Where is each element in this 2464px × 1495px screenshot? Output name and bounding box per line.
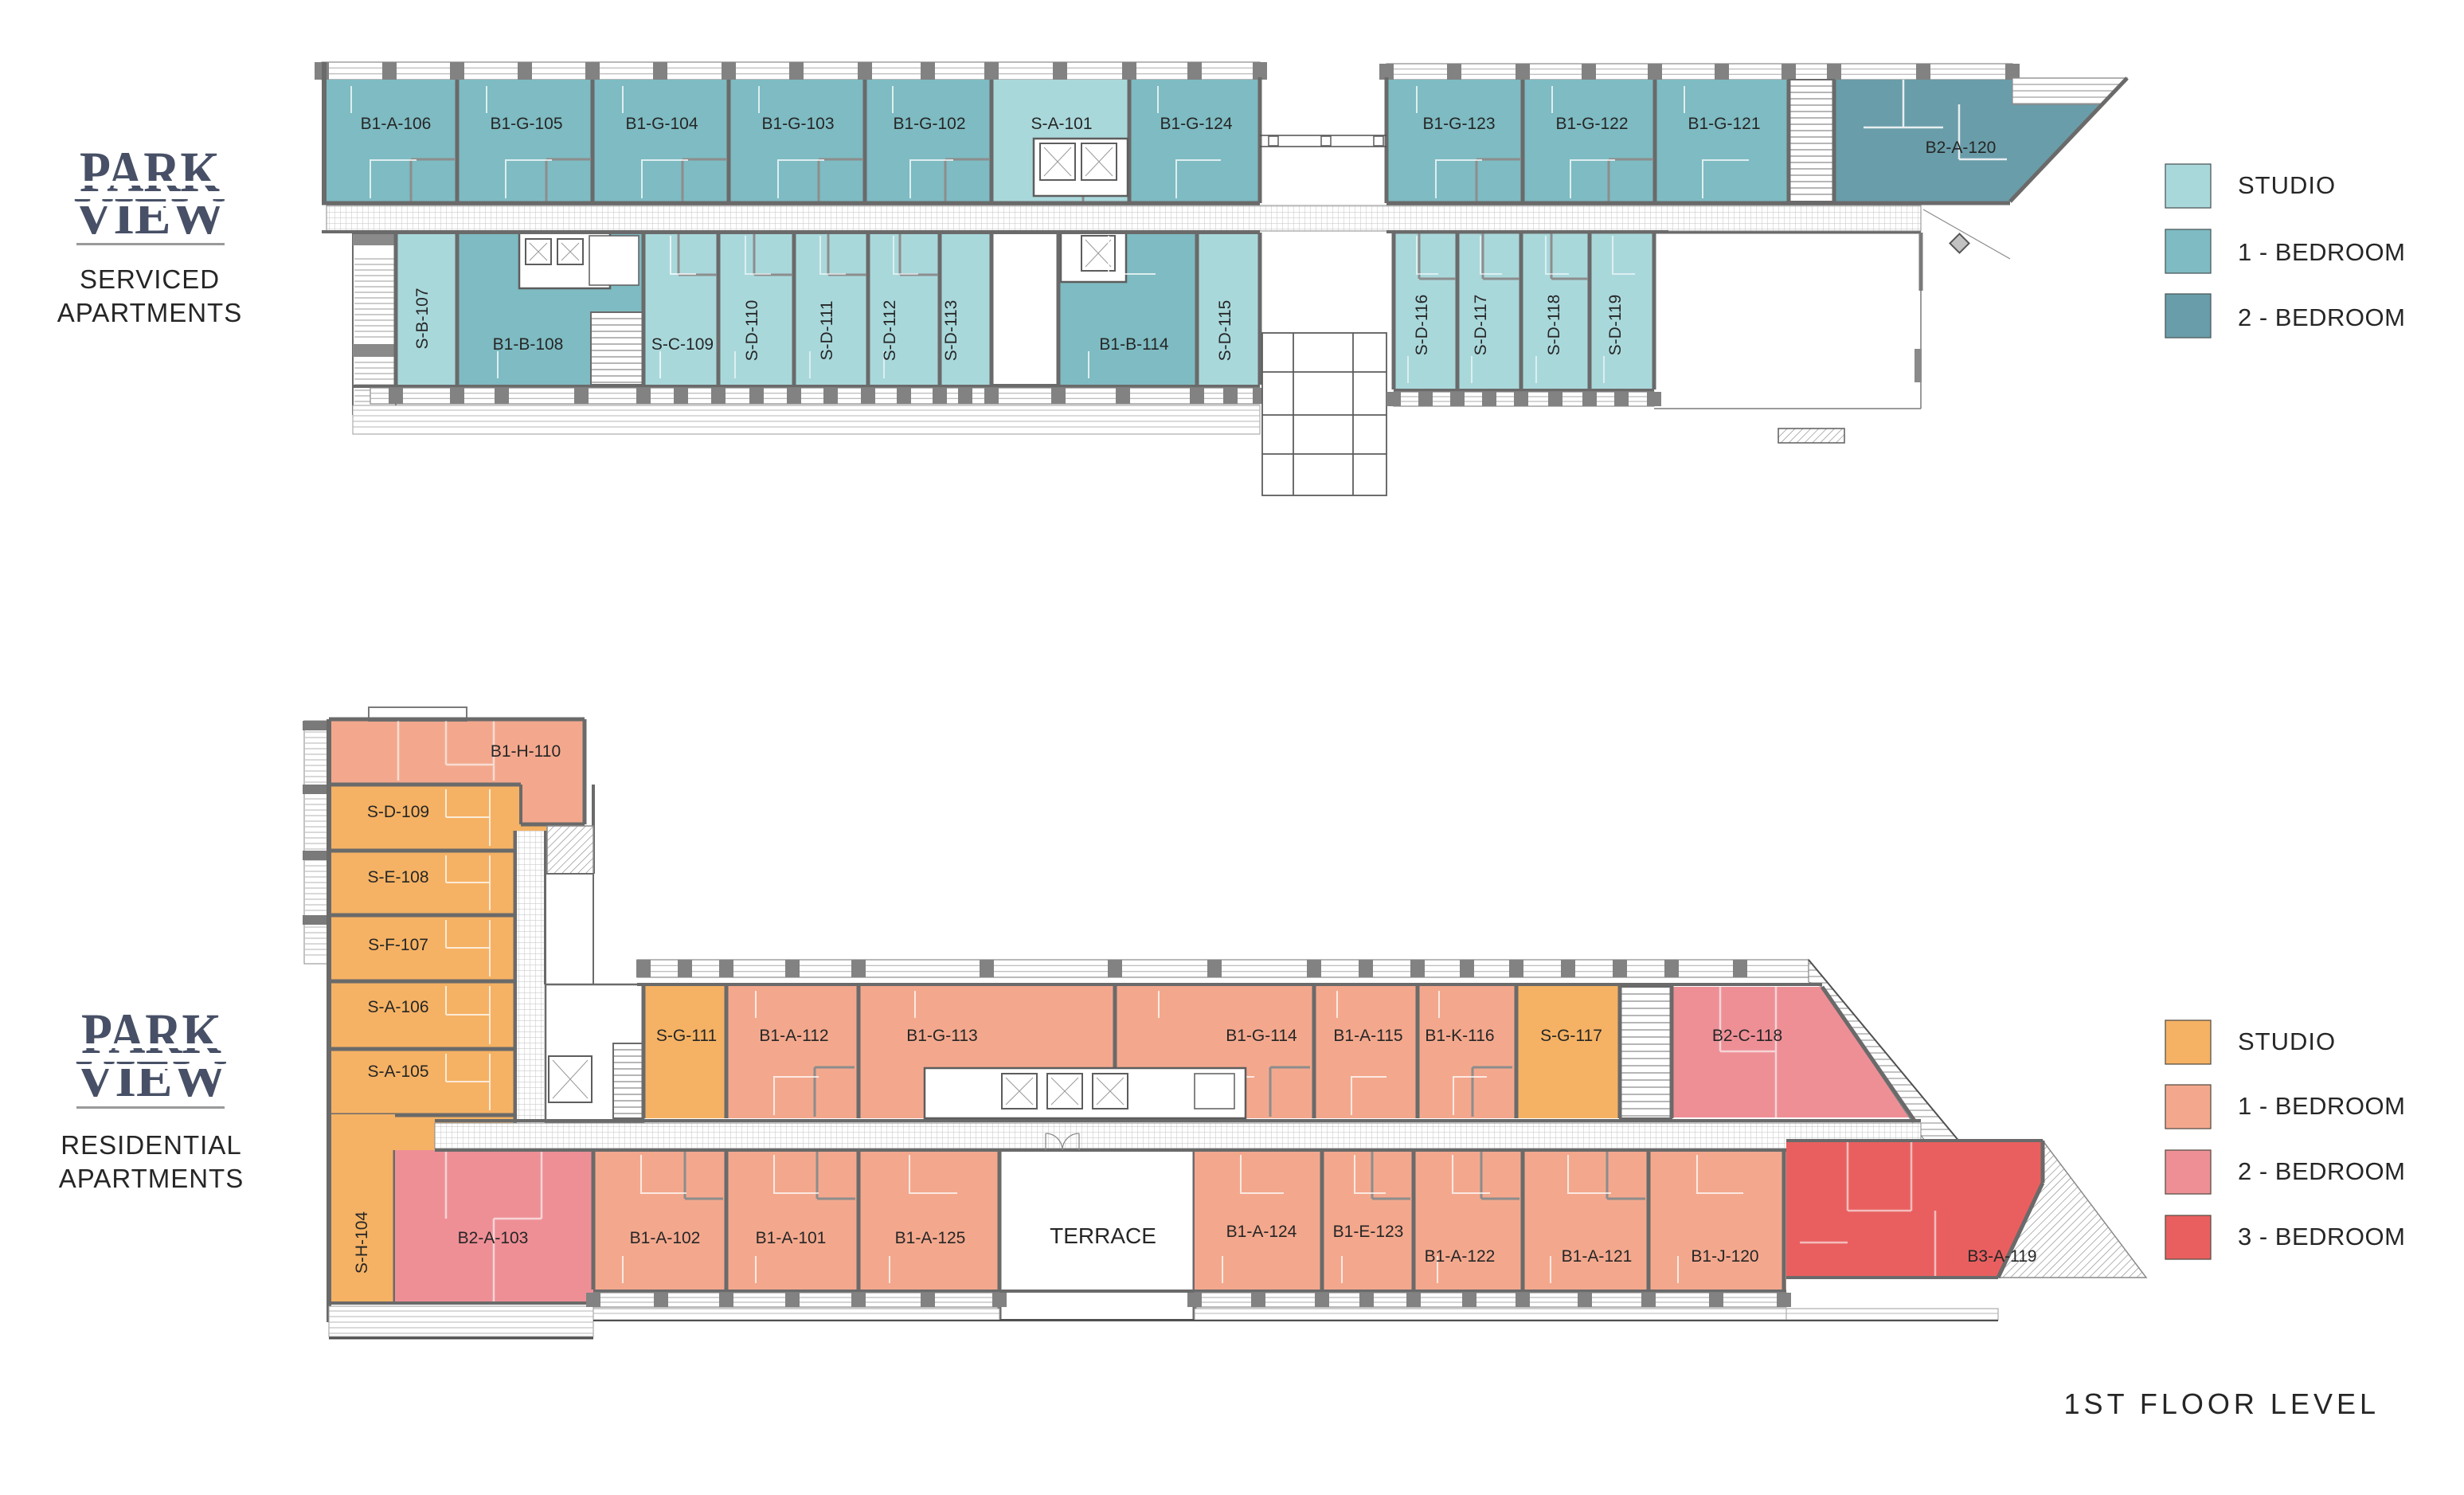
svg-text:S-D-109: S-D-109 [367,803,429,821]
svg-text:STUDIO: STUDIO [2238,1027,2336,1055]
svg-text:S-D-117: S-D-117 [1472,295,1490,356]
svg-text:B1-G-122: B1-G-122 [1555,115,1628,133]
svg-text:B1-G-113: B1-G-113 [906,1027,978,1045]
svg-text:S-D-119: S-D-119 [1606,295,1625,356]
svg-text:S-A-105: S-A-105 [367,1063,428,1081]
svg-text:1 - BEDROOM: 1 - BEDROOM [2238,238,2405,266]
svg-text:S-D-116: S-D-116 [1413,295,1431,356]
svg-text:APARTMENTS: APARTMENTS [59,1164,244,1193]
svg-text:S-B-107: S-B-107 [413,288,432,349]
svg-text:S-A-101: S-A-101 [1031,115,1092,133]
svg-text:B1-E-123: B1-E-123 [1333,1223,1404,1241]
svg-text:APARTMENTS: APARTMENTS [57,298,242,327]
svg-text:B1-A-101: B1-A-101 [756,1229,827,1247]
svg-text:3 - BEDROOM: 3 - BEDROOM [2238,1223,2405,1250]
svg-text:B1-G-124: B1-G-124 [1160,115,1232,133]
svg-text:B1-B-114: B1-B-114 [1099,335,1168,354]
svg-text:B1-G-105: B1-G-105 [490,115,562,133]
svg-text:TERRACE: TERRACE [1050,1223,1156,1248]
svg-text:B1-G-114: B1-G-114 [1226,1027,1297,1045]
svg-text:B1-G-123: B1-G-123 [1422,115,1495,133]
svg-text:B2-A-103: B2-A-103 [458,1229,529,1247]
svg-text:B1-A-121: B1-A-121 [1562,1247,1633,1266]
svg-text:2 - BEDROOM: 2 - BEDROOM [2238,1157,2405,1185]
svg-text:B1-G-102: B1-G-102 [893,115,965,133]
svg-text:B3-A-119: B3-A-119 [1967,1247,2036,1266]
svg-text:B1-A-125: B1-A-125 [895,1229,966,1247]
svg-text:S-D-113: S-D-113 [942,300,960,362]
svg-text:B1-K-116: B1-K-116 [1425,1027,1494,1045]
svg-text:S-C-109: S-C-109 [651,335,714,354]
svg-text:2 - BEDROOM: 2 - BEDROOM [2238,303,2405,331]
svg-text:VIEW: VIEW [74,187,225,245]
svg-text:VIEW: VIEW [76,1050,227,1108]
svg-text:B1-G-104: B1-G-104 [625,115,698,133]
svg-text:B1-G-121: B1-G-121 [1688,115,1760,133]
svg-text:B1-B-108: B1-B-108 [493,335,564,354]
svg-text:S-D-118: S-D-118 [1545,295,1563,356]
svg-text:S-E-108: S-E-108 [367,868,428,886]
svg-text:B1-A-106: B1-A-106 [361,115,432,133]
svg-text:B1-H-110: B1-H-110 [491,742,561,761]
svg-text:B2-C-118: B2-C-118 [1712,1027,1782,1045]
svg-text:B1-J-120: B1-J-120 [1691,1247,1758,1266]
svg-text:S-A-106: S-A-106 [367,998,428,1016]
svg-text:S-D-111: S-D-111 [818,300,836,360]
svg-text:B1-A-122: B1-A-122 [1425,1247,1496,1266]
svg-text:B1-A-124: B1-A-124 [1226,1223,1297,1241]
svg-text:SERVICED: SERVICED [80,264,220,294]
svg-text:B1-A-102: B1-A-102 [630,1229,701,1247]
svg-text:RESIDENTIAL: RESIDENTIAL [61,1130,241,1160]
svg-text:B2-A-120: B2-A-120 [1926,139,1997,157]
svg-text:STUDIO: STUDIO [2238,171,2336,199]
svg-text:B1-G-103: B1-G-103 [761,115,834,133]
svg-text:B1-A-115: B1-A-115 [1333,1027,1402,1045]
svg-text:S-F-107: S-F-107 [368,936,428,954]
svg-text:S-D-115: S-D-115 [1216,300,1234,362]
svg-text:S-H-104: S-H-104 [353,1211,371,1274]
svg-text:1 - BEDROOM: 1 - BEDROOM [2238,1092,2405,1120]
svg-text:S-D-110: S-D-110 [743,300,761,362]
svg-text:1ST FLOOR LEVEL: 1ST FLOOR LEVEL [2064,1387,2380,1420]
svg-text:B1-A-112: B1-A-112 [759,1027,828,1045]
svg-text:S-D-112: S-D-112 [881,300,899,362]
svg-text:S-G-117: S-G-117 [1540,1027,1602,1045]
svg-text:S-G-111: S-G-111 [656,1027,717,1045]
